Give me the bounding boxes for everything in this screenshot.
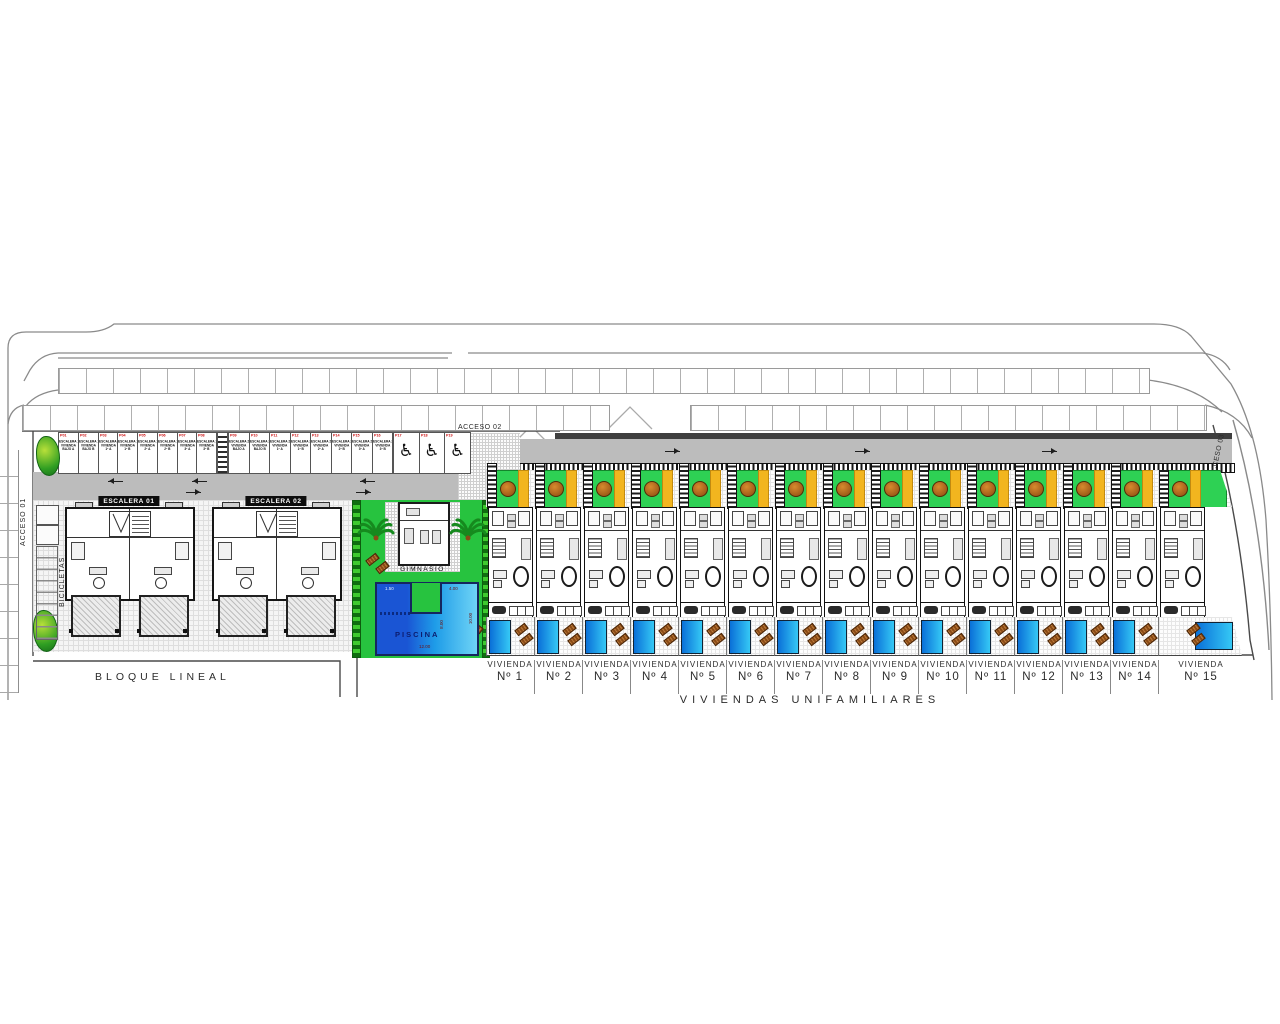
vivienda-label: VIVIENDA Nº 4 bbox=[630, 660, 679, 694]
tree-icon bbox=[644, 481, 660, 497]
armchair bbox=[925, 580, 934, 588]
bathroom-fixture bbox=[1035, 521, 1044, 528]
bed bbox=[780, 511, 792, 526]
bathroom-fixture bbox=[843, 514, 852, 521]
stairs bbox=[492, 538, 506, 558]
vivienda-number: Nº 1 bbox=[486, 671, 534, 683]
dining-table bbox=[609, 566, 625, 587]
tree-icon bbox=[884, 481, 900, 497]
vivienda-word: VIVIENDA bbox=[486, 660, 534, 669]
table bbox=[155, 577, 167, 589]
terrace bbox=[139, 595, 189, 637]
dining-table bbox=[801, 566, 817, 587]
parking-space: P15 ESCALERA 2 VIVIENDA 3º A bbox=[351, 432, 372, 474]
bed bbox=[924, 511, 936, 526]
vivienda-garden bbox=[726, 470, 774, 507]
garden-lawn bbox=[688, 470, 711, 509]
lower-sidewalk-band-left bbox=[22, 405, 610, 431]
house-floor-plan bbox=[968, 507, 1013, 619]
private-pool bbox=[1113, 620, 1135, 654]
sofa bbox=[154, 567, 172, 575]
carport-row bbox=[1161, 602, 1204, 618]
bathroom-fixture bbox=[1179, 521, 1188, 528]
tree-icon bbox=[692, 481, 708, 497]
bathroom-fixture bbox=[1131, 521, 1140, 528]
parking-code: P18 bbox=[421, 434, 428, 438]
armchair bbox=[829, 580, 838, 588]
car-icon bbox=[588, 606, 602, 614]
communal-pool: 1.50 4.00 10.00 8.00 12.00 PISCINA bbox=[375, 582, 479, 656]
vivienda-number: Nº 3 bbox=[583, 671, 631, 683]
vivienda-number: Nº 13 bbox=[1063, 671, 1111, 683]
sofa bbox=[89, 567, 107, 575]
bed bbox=[588, 511, 600, 526]
parking-code: P09 bbox=[230, 434, 237, 438]
wheelchair-icon: ♿︎ bbox=[445, 442, 470, 459]
sofa bbox=[925, 570, 939, 579]
bathroom-fixture bbox=[507, 521, 516, 528]
carport-row bbox=[1017, 602, 1060, 618]
sofa bbox=[973, 570, 987, 579]
stair-steps bbox=[279, 513, 296, 533]
sun-lounger bbox=[663, 633, 678, 647]
parking-code: P16 bbox=[374, 434, 381, 438]
garden-lawn bbox=[784, 470, 807, 509]
handicap-parking-space: P18 ♿︎ bbox=[419, 432, 445, 474]
direction-arrow-icon bbox=[360, 481, 375, 482]
vivienda-word: VIVIENDA bbox=[967, 660, 1015, 669]
kitchen-counter bbox=[905, 538, 915, 560]
bathroom-fixture bbox=[747, 521, 756, 528]
vivienda-number: Nº 9 bbox=[871, 671, 919, 683]
bathroom-fixture bbox=[987, 521, 996, 528]
storage-box bbox=[36, 505, 59, 525]
parking-code: P08 bbox=[198, 434, 205, 438]
vivienda-garden bbox=[774, 470, 822, 507]
pool-label: PISCINA bbox=[395, 630, 439, 639]
apartment-block: ESCALERA 01 bbox=[65, 507, 193, 639]
tree-icon bbox=[1076, 481, 1092, 497]
stairs bbox=[1020, 538, 1034, 558]
carport-row bbox=[537, 602, 580, 618]
vivienda-garden bbox=[1158, 470, 1242, 507]
bathroom-fixture bbox=[603, 514, 612, 521]
carport-row bbox=[489, 602, 532, 618]
vivienda-garden bbox=[534, 470, 582, 507]
vivienda-word: VIVIENDA bbox=[679, 660, 727, 669]
parking-divider bbox=[217, 432, 228, 474]
palm-tree-icon bbox=[448, 516, 488, 556]
vivienda-garden bbox=[630, 470, 678, 507]
vivienda-terrace bbox=[822, 617, 871, 656]
parking-assignment: ESCALERA 1 VIVIENDA BAJO B bbox=[79, 440, 98, 451]
garden-lawn bbox=[640, 470, 663, 509]
bed bbox=[1046, 511, 1058, 526]
private-pool bbox=[777, 620, 799, 654]
parking-code: P06 bbox=[159, 434, 166, 438]
sun-lounger bbox=[615, 633, 630, 647]
sofa bbox=[637, 570, 651, 579]
pergola-strip bbox=[614, 470, 625, 509]
pool-dim-top-left: 1.50 bbox=[385, 586, 394, 591]
vivienda-label: VIVIENDA Nº 15 bbox=[1158, 660, 1243, 694]
bed bbox=[806, 511, 818, 526]
vivienda-terrace bbox=[630, 617, 679, 656]
dining-table bbox=[897, 566, 913, 587]
pergola-strip bbox=[806, 470, 817, 509]
vivienda-terrace bbox=[1014, 617, 1063, 656]
parking-space: P14 ESCALERA 2 VIVIENDA 2º B bbox=[331, 432, 352, 474]
stairs bbox=[1164, 538, 1178, 558]
armchair bbox=[877, 580, 886, 588]
vivienda-garden bbox=[822, 470, 870, 507]
private-pool bbox=[1017, 620, 1039, 654]
vivienda-garden bbox=[870, 470, 918, 507]
garden-side-wall bbox=[1111, 463, 1121, 509]
kitchen-counter bbox=[1049, 538, 1059, 560]
bed bbox=[828, 511, 840, 526]
pergola-strip bbox=[1046, 470, 1057, 509]
terrace bbox=[286, 595, 336, 637]
vivienda-word: VIVIENDA bbox=[583, 660, 631, 669]
bathroom-fixture bbox=[1083, 521, 1092, 528]
vivienda-word: VIVIENDA bbox=[1063, 660, 1111, 669]
houses-drive-lane bbox=[520, 439, 1232, 465]
parking-assignment: ESCALERA 1 VIVIENDA BAJO A bbox=[59, 440, 78, 451]
parking-space: P11 ESCALERA 2 VIVIENDA 1º A bbox=[269, 432, 290, 474]
vivienda-unit: VIVIENDA Nº 13 bbox=[1062, 470, 1110, 702]
sun-lounger bbox=[855, 633, 870, 647]
armchair bbox=[1069, 580, 1078, 588]
pool-dim-mid: 8.00 bbox=[439, 620, 444, 629]
vivienda-garden bbox=[582, 470, 630, 507]
vivienda-terrace bbox=[870, 617, 919, 656]
pool-dim-top-right: 4.00 bbox=[449, 586, 458, 591]
sofa bbox=[781, 570, 795, 579]
sofa bbox=[1165, 570, 1179, 579]
armchair bbox=[1165, 580, 1174, 588]
kitchen-counter bbox=[1193, 538, 1203, 560]
sofa bbox=[301, 567, 319, 575]
vivienda-unit: VIVIENDA Nº 2 bbox=[534, 470, 582, 702]
bloque-lineal-label: BLOQUE LINEAL bbox=[95, 671, 230, 683]
armchair bbox=[973, 580, 982, 588]
garden-side-wall bbox=[583, 463, 593, 509]
garden-side-wall bbox=[1015, 463, 1025, 509]
garden-lawn bbox=[1120, 470, 1143, 509]
parking-code: P17 bbox=[395, 434, 402, 438]
vivienda-unit: VIVIENDA Nº 14 bbox=[1110, 470, 1158, 702]
vivienda-label: VIVIENDA Nº 14 bbox=[1110, 660, 1159, 694]
garden-lawn bbox=[976, 470, 999, 509]
garden-side-wall bbox=[535, 463, 545, 509]
bed bbox=[854, 511, 866, 526]
vivienda-word: VIVIENDA bbox=[919, 660, 967, 669]
parking-space: P07 ESCALERA 1 VIVIENDA 3º A bbox=[177, 432, 197, 474]
vivienda-unit: VIVIENDA Nº 5 bbox=[678, 470, 726, 702]
garden-side-wall bbox=[967, 463, 977, 509]
bathroom-fixture bbox=[1131, 514, 1140, 521]
table bbox=[93, 577, 105, 589]
sofa bbox=[541, 570, 555, 579]
tree-icon bbox=[500, 481, 516, 497]
tree-icon bbox=[836, 481, 852, 497]
bed bbox=[950, 511, 962, 526]
bathroom-fixture bbox=[651, 514, 660, 521]
armchair bbox=[493, 580, 502, 588]
parking-assignment: ESCALERA 1 VIVIENDA 1º B bbox=[118, 440, 137, 451]
pergola-strip bbox=[566, 470, 577, 509]
tree-icon bbox=[932, 481, 948, 497]
stairs bbox=[540, 538, 554, 558]
terrace bbox=[218, 595, 268, 637]
gym-label: GIMNASIO bbox=[380, 566, 465, 573]
tree-icon bbox=[1028, 481, 1044, 497]
carport-row bbox=[825, 602, 868, 618]
vivienda-word: VIVIENDA bbox=[535, 660, 583, 669]
stair-steps bbox=[132, 513, 149, 533]
vivienda-label: VIVIENDA Nº 2 bbox=[534, 660, 583, 694]
vivienda-number: Nº 6 bbox=[727, 671, 775, 683]
private-pool bbox=[825, 620, 847, 654]
vivienda-label: VIVIENDA Nº 5 bbox=[678, 660, 727, 694]
private-pool bbox=[489, 620, 511, 654]
garden-lawn bbox=[1024, 470, 1047, 509]
car-icon bbox=[1068, 606, 1082, 614]
garden-side-wall bbox=[775, 463, 785, 509]
bathroom-fixture bbox=[795, 514, 804, 521]
kitchen-counter bbox=[569, 538, 579, 560]
private-pool bbox=[537, 620, 559, 654]
table bbox=[240, 577, 252, 589]
palm-tree-icon bbox=[356, 516, 396, 556]
sofa bbox=[877, 570, 891, 579]
gym-equipment bbox=[432, 530, 441, 544]
vivienda-number: Nº 8 bbox=[823, 671, 871, 683]
armchair bbox=[733, 580, 742, 588]
gym-equipment bbox=[404, 528, 414, 544]
vivienda-unit: VIVIENDA Nº 15 bbox=[1158, 470, 1242, 702]
block-banner-label: ESCALERA 02 bbox=[245, 496, 306, 506]
sofa bbox=[733, 570, 747, 579]
car-icon bbox=[636, 606, 650, 614]
bathroom-fixture bbox=[507, 514, 516, 521]
kitchen-counter bbox=[1001, 538, 1011, 560]
storage-box bbox=[36, 525, 59, 545]
bathroom-fixture bbox=[699, 521, 708, 528]
parking-code: P19 bbox=[446, 434, 453, 438]
gym-wall bbox=[400, 520, 448, 521]
upper-sidewalk-band bbox=[58, 368, 1150, 394]
parking-assignment: ESCALERA 1 VIVIENDA 2º B bbox=[158, 440, 177, 451]
bathroom-fixture bbox=[843, 521, 852, 528]
parking-code: P04 bbox=[119, 434, 126, 438]
vivienda-unit: VIVIENDA Nº 11 bbox=[966, 470, 1014, 702]
sofa bbox=[1117, 570, 1131, 579]
stairs bbox=[684, 538, 698, 558]
dining-table bbox=[1089, 566, 1105, 587]
vivienda-word: VIVIENDA bbox=[1015, 660, 1063, 669]
handicap-parking-space: P17 ♿︎ bbox=[393, 432, 419, 474]
left-road-parking-cells bbox=[0, 450, 19, 693]
garden-side-wall bbox=[871, 463, 881, 509]
dining-table bbox=[945, 566, 961, 587]
private-pool bbox=[681, 620, 703, 654]
parking-code: P12 bbox=[292, 434, 299, 438]
sofa bbox=[829, 570, 843, 579]
parking-code: P02 bbox=[80, 434, 87, 438]
parking-space: P12 ESCALERA 2 VIVIENDA 1º B bbox=[290, 432, 311, 474]
vivienda-word: VIVIENDA bbox=[871, 660, 919, 669]
car-icon bbox=[780, 606, 794, 614]
kitchen-counter bbox=[809, 538, 819, 560]
vivienda-garden bbox=[1014, 470, 1062, 507]
vivienda-unit: VIVIENDA Nº 3 bbox=[582, 470, 630, 702]
parking-assignment: ESCALERA 2 VIVIENDA 1º A bbox=[270, 440, 290, 451]
sun-lounger bbox=[903, 633, 918, 647]
sofa bbox=[1069, 570, 1083, 579]
bed bbox=[998, 511, 1010, 526]
car-icon bbox=[684, 606, 698, 614]
tree-icon bbox=[548, 481, 564, 497]
stairs bbox=[1116, 538, 1130, 558]
pergola-strip bbox=[518, 470, 529, 509]
parking-code: P10 bbox=[251, 434, 258, 438]
apartment-block: ESCALERA 02 bbox=[212, 507, 340, 639]
parking-code: P13 bbox=[312, 434, 319, 438]
pool-dim-bottom: 12.00 bbox=[419, 644, 430, 649]
parking-code: P11 bbox=[271, 434, 277, 438]
vivienda-word: VIVIENDA bbox=[1159, 660, 1243, 669]
stairs bbox=[256, 511, 298, 537]
vivienda-number: Nº 15 bbox=[1159, 671, 1243, 683]
vivienda-label: VIVIENDA Nº 3 bbox=[582, 660, 631, 694]
bed bbox=[758, 511, 770, 526]
vivienda-terrace bbox=[1062, 617, 1111, 656]
vivienda-label: VIVIENDA Nº 8 bbox=[822, 660, 871, 694]
sun-lounger bbox=[759, 633, 774, 647]
car-icon bbox=[732, 606, 746, 614]
garden-side-wall bbox=[823, 463, 833, 509]
private-pool bbox=[1065, 620, 1087, 654]
garden-lawn bbox=[544, 470, 567, 509]
vivienda-label: VIVIENDA Nº 11 bbox=[966, 660, 1015, 694]
carport-row bbox=[633, 602, 676, 618]
bush bbox=[36, 436, 60, 476]
stairs bbox=[636, 538, 650, 558]
vivienda-label: VIVIENDA Nº 6 bbox=[726, 660, 775, 694]
house-floor-plan bbox=[680, 507, 725, 619]
parking-space: P16 ESCALERA 2 VIVIENDA 3º B bbox=[372, 432, 394, 474]
parking-code: P07 bbox=[179, 434, 186, 438]
parking-code: P15 bbox=[353, 434, 360, 438]
bathroom-fixture bbox=[891, 514, 900, 521]
armchair bbox=[1021, 580, 1030, 588]
bed bbox=[636, 511, 648, 526]
vivienda-word: VIVIENDA bbox=[823, 660, 871, 669]
vivienda-garden bbox=[486, 470, 534, 507]
vivienda-terrace bbox=[726, 617, 775, 656]
vivienda-number: Nº 5 bbox=[679, 671, 727, 683]
bed bbox=[518, 511, 530, 526]
parking-code: P05 bbox=[139, 434, 146, 438]
private-pool bbox=[585, 620, 607, 654]
armchair bbox=[637, 580, 646, 588]
car-icon bbox=[540, 606, 554, 614]
garden-lawn bbox=[1168, 470, 1191, 509]
private-pool bbox=[633, 620, 655, 654]
bed bbox=[1020, 511, 1032, 526]
garden-side-wall bbox=[679, 463, 689, 509]
gym-equipment bbox=[406, 508, 420, 516]
bed bbox=[492, 511, 504, 526]
kitchen-counter bbox=[1145, 538, 1155, 560]
vivienda-number: Nº 14 bbox=[1111, 671, 1159, 683]
sofa bbox=[236, 567, 254, 575]
vivienda-unit: VIVIENDA Nº 10 bbox=[918, 470, 966, 702]
bathroom-fixture bbox=[1179, 514, 1188, 521]
kitchen-counter bbox=[665, 538, 675, 560]
lower-sidewalk-band-right bbox=[690, 405, 1207, 431]
vivienda-garden bbox=[678, 470, 726, 507]
carport-row bbox=[873, 602, 916, 618]
vivienda-label: VIVIENDA Nº 12 bbox=[1014, 660, 1063, 694]
sun-lounger bbox=[711, 633, 726, 647]
stairs bbox=[1068, 538, 1082, 558]
parking-space: P13 ESCALERA 2 VIVIENDA 2º A bbox=[310, 432, 331, 474]
carport-row bbox=[1065, 602, 1108, 618]
vivienda-terrace bbox=[582, 617, 631, 656]
table bbox=[302, 577, 314, 589]
vivienda-terrace bbox=[966, 617, 1015, 656]
parking-assignment: ESCALERA 2 VIVIENDA BAJO B bbox=[250, 440, 270, 451]
carport-row bbox=[585, 602, 628, 618]
garden-side-wall bbox=[727, 463, 737, 509]
kitchen-counter bbox=[1097, 538, 1107, 560]
parking-space: P06 ESCALERA 1 VIVIENDA 2º B bbox=[157, 432, 177, 474]
car-icon bbox=[492, 606, 506, 614]
dining-table bbox=[1137, 566, 1153, 587]
vivienda-garden bbox=[1110, 470, 1158, 507]
acceso01-label: ACCESO 01 bbox=[20, 498, 27, 546]
carport-row bbox=[921, 602, 964, 618]
bathroom-fixture bbox=[939, 521, 948, 528]
direction-arrow-icon bbox=[108, 481, 123, 482]
sofa bbox=[685, 570, 699, 579]
bed bbox=[322, 542, 336, 560]
stairs bbox=[828, 538, 842, 558]
vivienda-label: VIVIENDA Nº 7 bbox=[774, 660, 823, 694]
pergola-strip bbox=[1094, 470, 1105, 509]
bed bbox=[710, 511, 722, 526]
garden-lawn bbox=[736, 470, 759, 509]
dining-table bbox=[1041, 566, 1057, 587]
dining-table bbox=[849, 566, 865, 587]
terrace bbox=[71, 595, 121, 637]
site-plan-canvas: { "accesses": { "acceso01": "ACCESO 01",… bbox=[0, 0, 1280, 1024]
block-outline bbox=[65, 507, 195, 601]
car-icon bbox=[828, 606, 842, 614]
gym-equipment bbox=[420, 530, 429, 544]
bed bbox=[566, 511, 578, 526]
vivienda-unit: VIVIENDA Nº 4 bbox=[630, 470, 678, 702]
bathroom-fixture bbox=[891, 521, 900, 528]
bed bbox=[175, 542, 189, 560]
parking-space: P03 ESCALERA 1 VIVIENDA 1º A bbox=[98, 432, 118, 474]
bed bbox=[540, 511, 552, 526]
bed bbox=[1190, 511, 1202, 526]
house-floor-plan bbox=[488, 507, 533, 619]
